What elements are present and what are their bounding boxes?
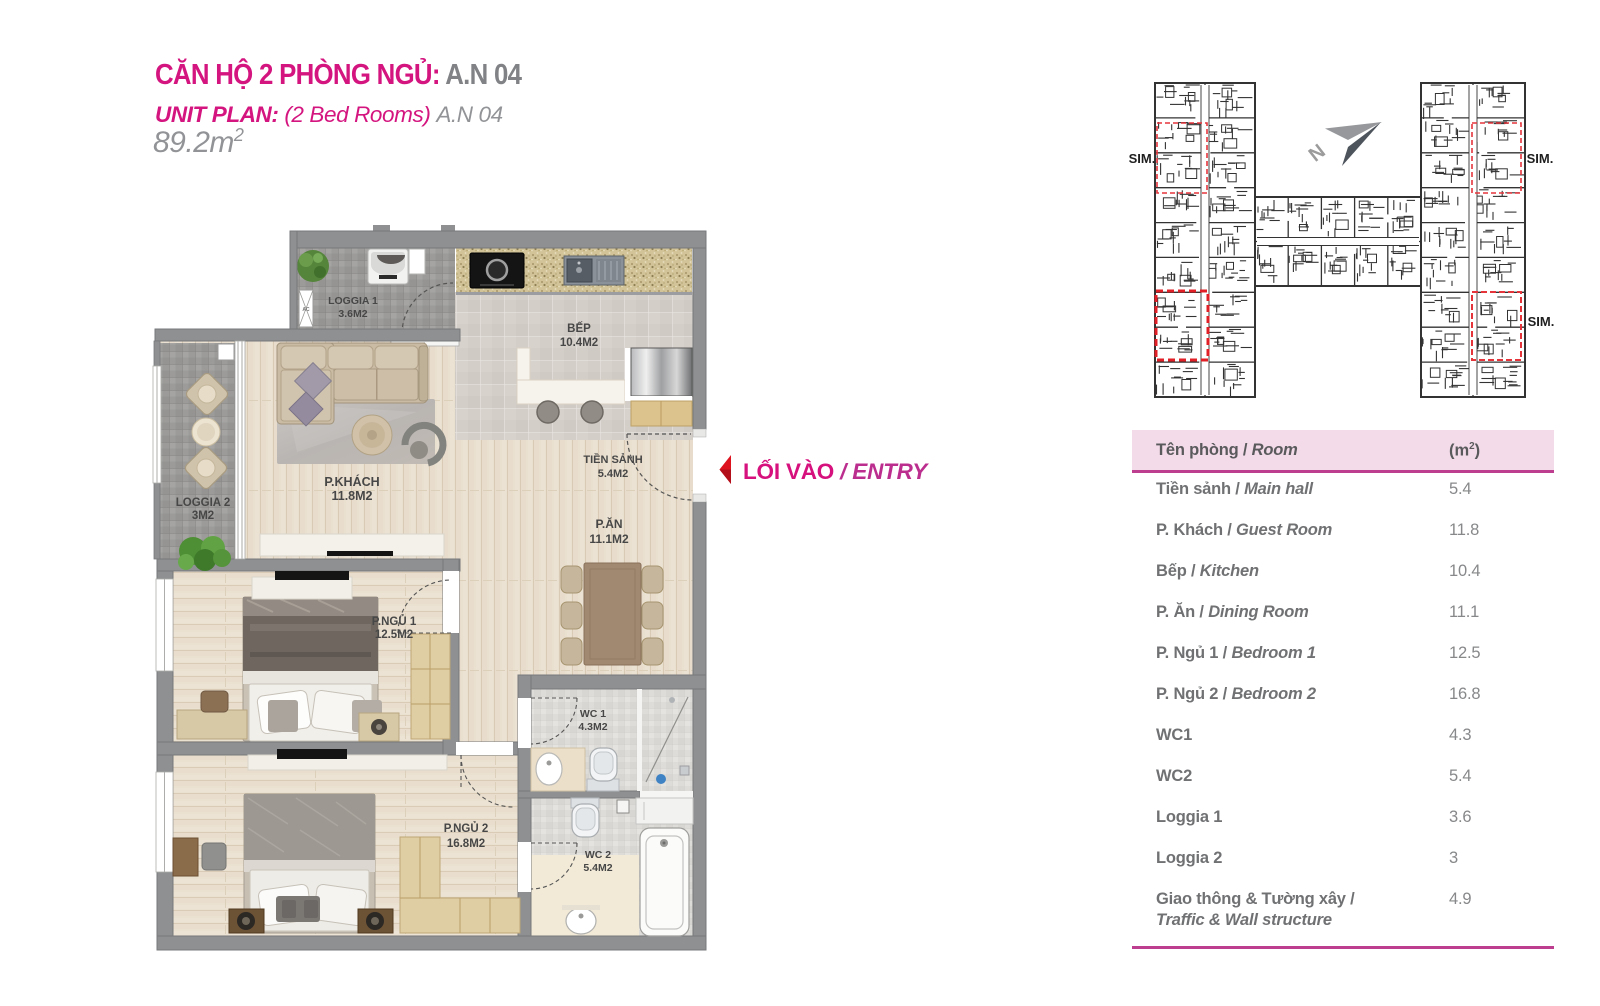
svg-text:16.8M2: 16.8M2: [447, 838, 485, 850]
svg-text:SIM.: SIM.: [1528, 314, 1555, 329]
svg-text:WC 1: WC 1: [580, 708, 606, 720]
svg-text:WC 2: WC 2: [585, 849, 611, 861]
svg-text:AC: AC: [302, 307, 310, 313]
svg-text:SIM.: SIM.: [1527, 151, 1554, 166]
svg-text:P.NGỦ 2: P.NGỦ 2: [444, 822, 489, 835]
svg-text:5.4M2: 5.4M2: [598, 468, 629, 480]
svg-text:N: N: [1305, 140, 1330, 166]
svg-text:5.4M2: 5.4M2: [583, 862, 612, 874]
svg-text:BẾP: BẾP: [567, 322, 591, 335]
svg-text:3M2: 3M2: [192, 510, 214, 522]
svg-text:10.4M2: 10.4M2: [560, 337, 598, 349]
svg-text:LOGGIA 2: LOGGIA 2: [176, 497, 231, 509]
svg-text:SIM.: SIM.: [1129, 151, 1156, 166]
svg-text:P.ĂN: P.ĂN: [595, 516, 622, 531]
svg-text:4.3M2: 4.3M2: [578, 721, 607, 733]
svg-text:12.5M2: 12.5M2: [375, 629, 413, 641]
svg-text:11.8M2: 11.8M2: [331, 489, 372, 503]
svg-text:P.KHÁCH: P.KHÁCH: [324, 474, 379, 489]
svg-text:TIỀN SẢNH: TIỀN SẢNH: [583, 453, 642, 466]
svg-text:P.NGỦ 1: P.NGỦ 1: [372, 615, 417, 628]
svg-text:11.1M2: 11.1M2: [589, 532, 629, 546]
svg-text:3.6M2: 3.6M2: [338, 308, 367, 320]
svg-text:LOGGIA 1: LOGGIA 1: [328, 295, 378, 307]
